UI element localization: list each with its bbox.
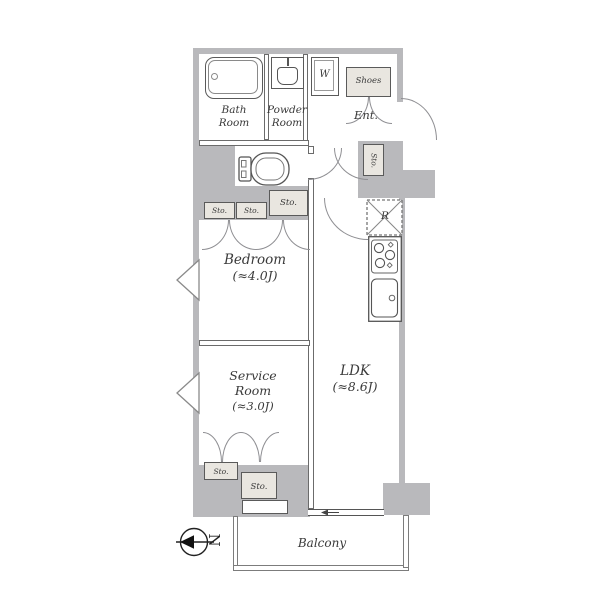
ldk-size: (≈8.6J) <box>315 379 395 394</box>
service-closet-arc-4 <box>260 432 279 462</box>
storage-box-4: Sto. <box>204 462 238 480</box>
storage-box-5: Sto. <box>241 472 277 499</box>
service-room-label: Service Room (≈3.0J) <box>200 368 306 413</box>
ldk-line1: LDK <box>315 363 395 379</box>
service-closet-arc-2 <box>222 432 241 462</box>
balcony-wall-bottom <box>233 565 409 571</box>
bathtub-icon <box>205 57 263 99</box>
shoes-cabinet: Shoes <box>346 67 391 97</box>
bath-line2: Room <box>205 117 263 130</box>
bedroom-closet-arc-4 <box>283 220 310 250</box>
service-window-icon <box>174 371 201 415</box>
shoes-label: Shoes <box>347 76 390 86</box>
powder-line2: Room <box>266 117 308 130</box>
bedroom-closet-arc-1 <box>202 220 229 250</box>
bedroom-closet-arc-2 <box>229 220 256 250</box>
ldk-label: LDK (≈8.6J) <box>315 363 395 395</box>
powder-room-label: Powder Room <box>266 104 308 130</box>
storage-label-5: Sto. <box>242 482 276 492</box>
storage-box-2: Sto. <box>236 202 267 219</box>
entrance-label: Ent. <box>336 108 396 122</box>
refrigerator-label: R <box>372 210 398 223</box>
kitchen-door-arc <box>324 198 368 240</box>
bedroom-closet-arc-3 <box>256 220 283 250</box>
storage-label-1: Sto. <box>205 206 234 215</box>
wall-entry-right <box>397 48 403 102</box>
bedroom-label: Bedroom (≈4.0J) <box>202 252 308 284</box>
service-line1: Service <box>200 368 306 383</box>
bedroom-line1: Bedroom <box>202 252 308 268</box>
storage-box-1: Sto. <box>204 202 235 219</box>
service-closet-arc-3 <box>241 432 260 462</box>
bedroom-window-icon <box>174 258 201 302</box>
service-line2: Room <box>200 383 306 398</box>
storage-label-2: Sto. <box>237 206 266 215</box>
wall-bedroom-service <box>199 340 310 346</box>
wall-bath-bottom <box>199 140 309 146</box>
bedroom-size: (≈4.0J) <box>202 268 308 283</box>
kitchen-counter-icon <box>368 236 402 322</box>
balcony-label: Balcony <box>240 536 404 551</box>
sink-basin <box>277 67 298 85</box>
wall-top <box>193 48 403 54</box>
balcony-wall-left <box>233 516 238 568</box>
wall-toilet-left <box>193 146 235 191</box>
washer-box: W <box>311 57 339 96</box>
powder-line1: Powder <box>266 104 308 117</box>
sink-icon <box>271 57 304 89</box>
storage-label-3: Sto. <box>270 198 307 208</box>
window-arrow-icon <box>320 508 340 517</box>
compass-north-label: N <box>203 531 223 549</box>
service-closet-arc-1 <box>203 432 222 462</box>
wall-pillar <box>383 483 430 515</box>
service-size: (≈3.0J) <box>200 399 306 413</box>
storage-nook: Sto. <box>363 144 384 176</box>
entrance-door-arc <box>401 98 437 140</box>
bathtub-drain <box>211 73 218 80</box>
storage-nook-label: Sto. <box>369 145 378 177</box>
bath-line1: Bath <box>205 104 263 117</box>
bath-room-label: Bath Room <box>205 104 263 130</box>
wall-step-block <box>403 170 435 198</box>
floor-plan: W Shoes Sto. R Sto. Sto. S <box>0 0 615 604</box>
washer-label: W <box>312 69 337 81</box>
storage-box-3: Sto. <box>269 190 308 216</box>
storage-label-4: Sto. <box>205 467 237 476</box>
sink-tap <box>287 58 289 66</box>
toilet-icon <box>238 150 292 188</box>
bottom-opening <box>242 500 288 514</box>
